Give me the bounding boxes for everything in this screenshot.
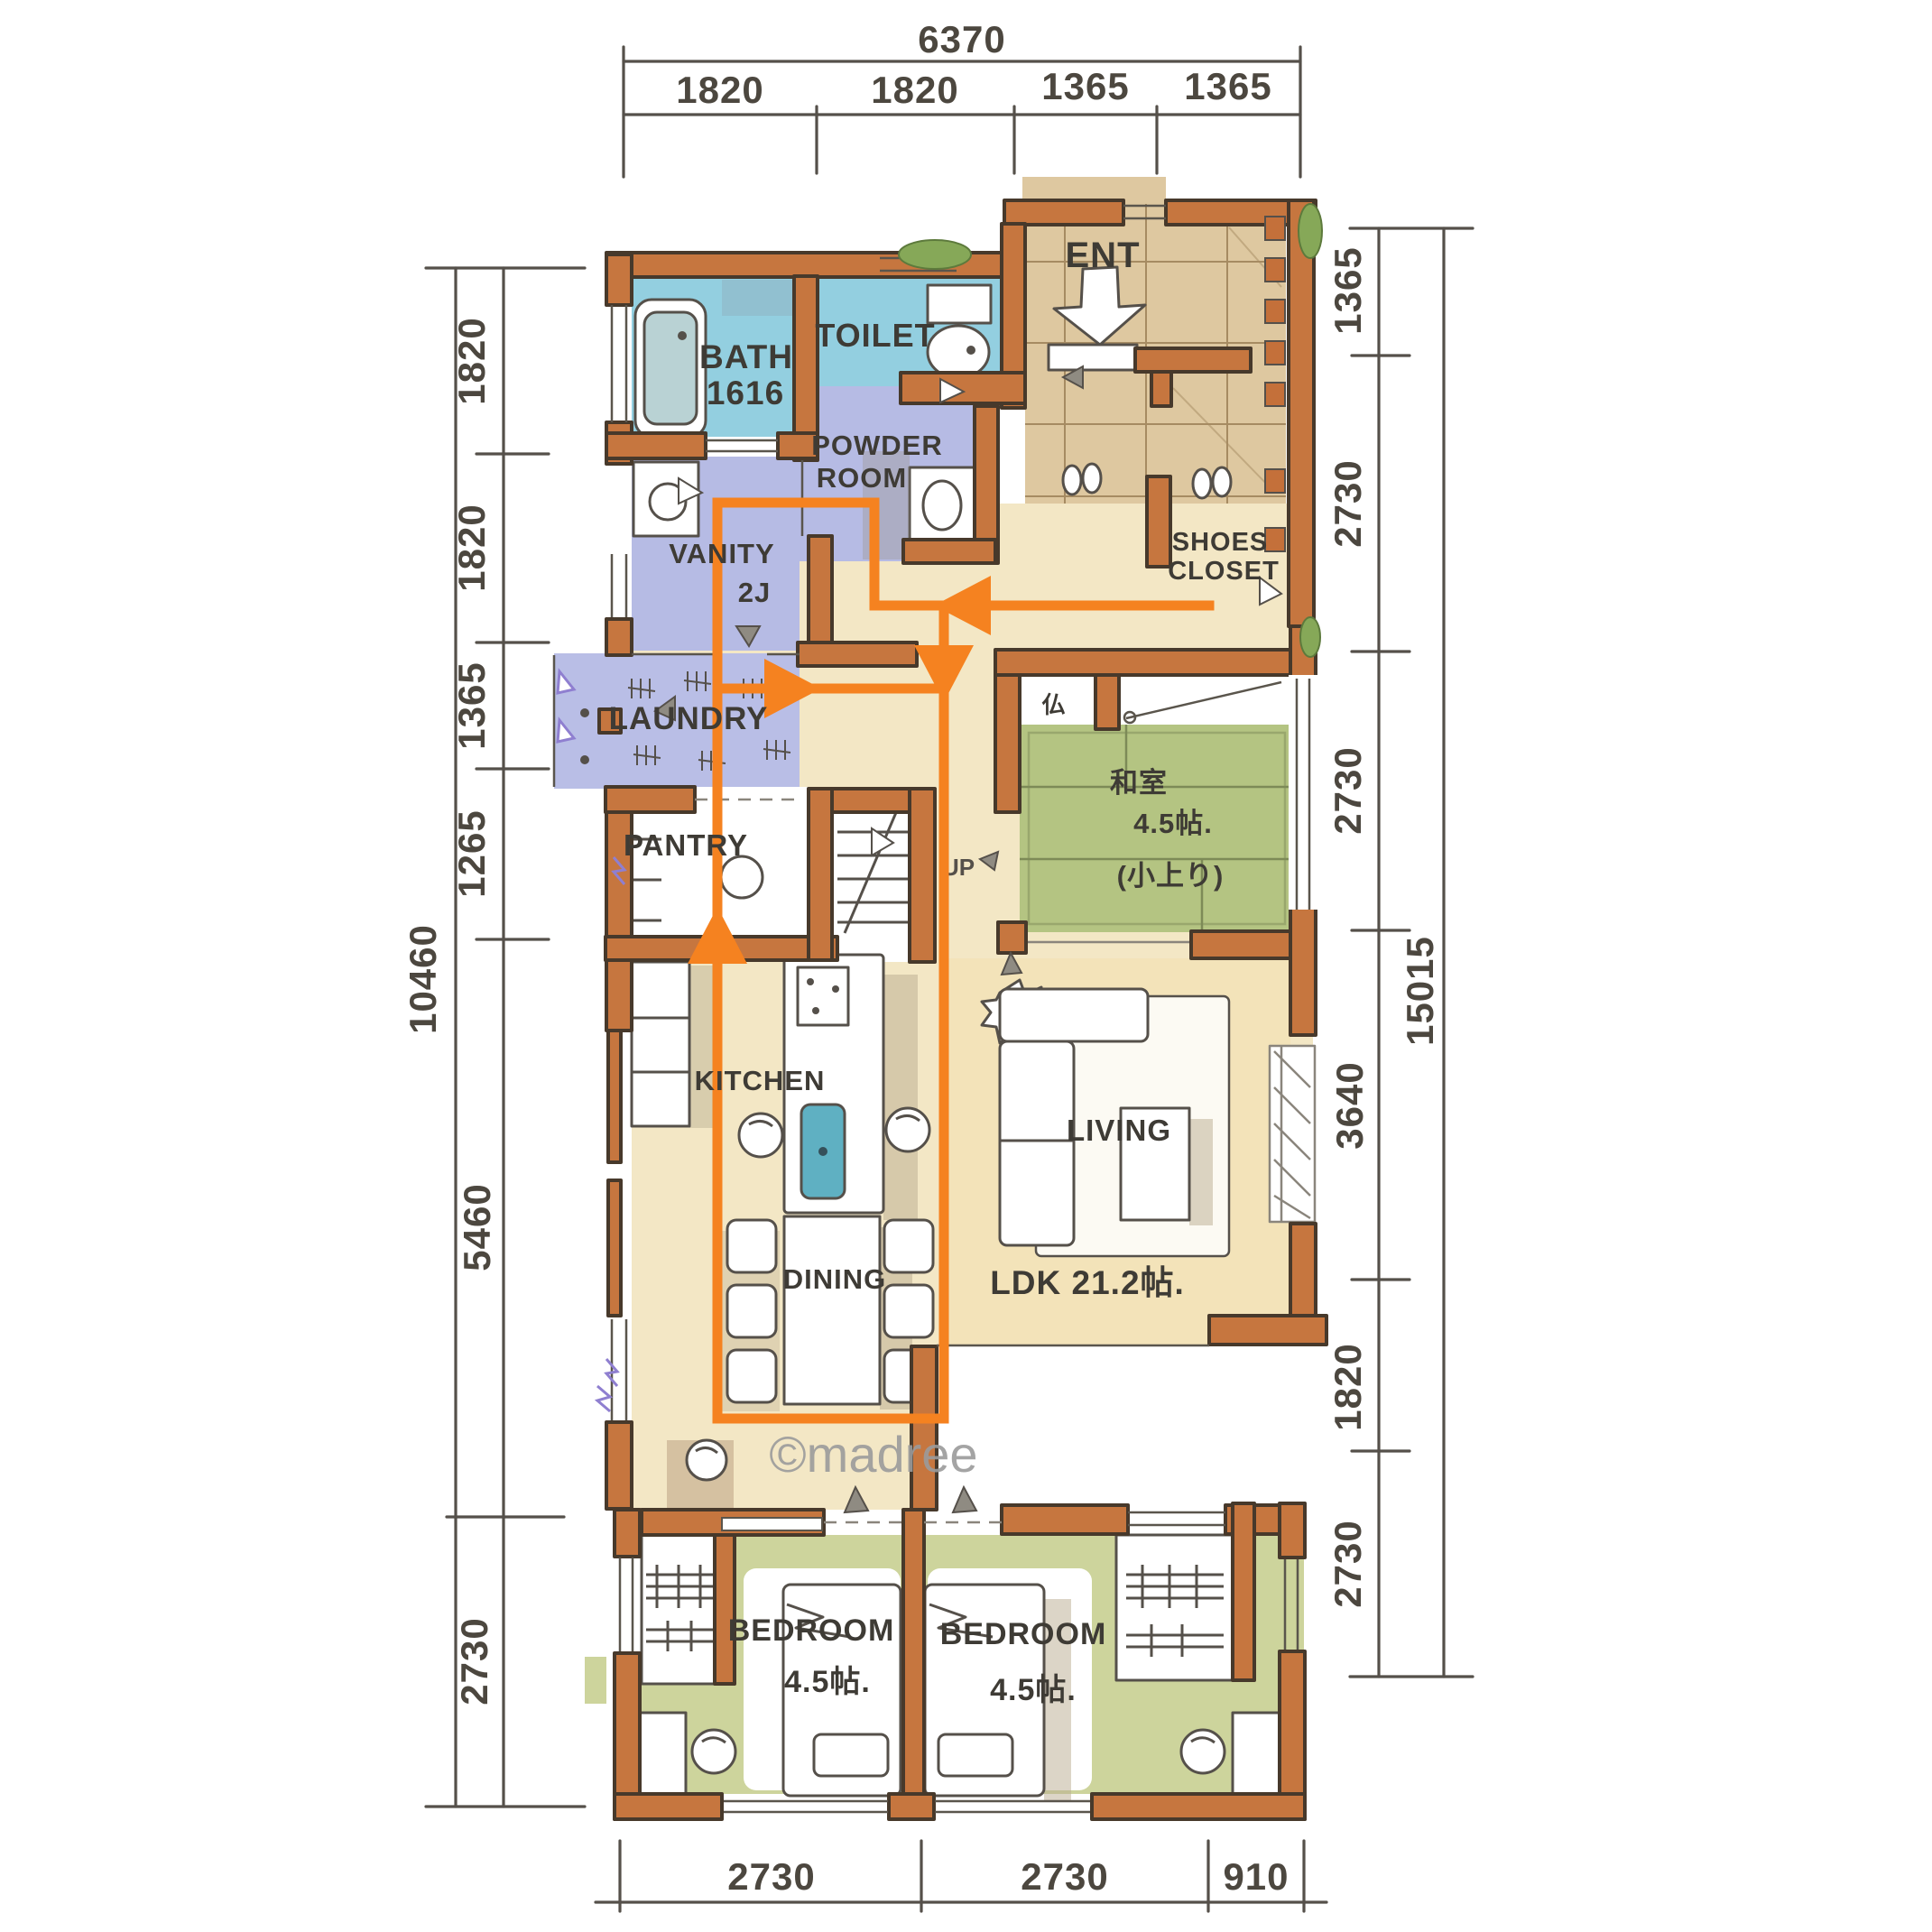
svg-text:BATH: BATH: [699, 338, 793, 375]
svg-text:10460: 10460: [402, 924, 444, 1034]
svg-text:2730: 2730: [453, 1617, 495, 1705]
svg-text:CLOSET: CLOSET: [1168, 557, 1280, 586]
svg-text:2J: 2J: [738, 577, 771, 608]
svg-text:2730: 2730: [1327, 459, 1369, 547]
svg-text:(小上り): (小上り): [1117, 860, 1225, 892]
svg-text:1365: 1365: [1184, 65, 1271, 107]
svg-text:SHOES: SHOES: [1172, 528, 1269, 557]
svg-text:KITCHEN: KITCHEN: [695, 1065, 826, 1096]
svg-text:2730: 2730: [1327, 746, 1369, 834]
svg-text:1820: 1820: [450, 317, 493, 404]
svg-text:6370: 6370: [918, 18, 1005, 60]
svg-text:2730: 2730: [727, 1855, 815, 1898]
svg-text:1616: 1616: [707, 374, 784, 411]
svg-text:3640: 3640: [1328, 1061, 1371, 1149]
svg-text:DINING: DINING: [783, 1263, 887, 1295]
svg-text:1265: 1265: [450, 809, 493, 897]
svg-text:4.5帖.: 4.5帖.: [784, 1665, 871, 1699]
svg-text:910: 910: [1223, 1855, 1289, 1898]
svg-text:15015: 15015: [1399, 936, 1441, 1046]
svg-text:1820: 1820: [871, 69, 958, 111]
svg-text:1820: 1820: [1327, 1343, 1369, 1430]
svg-text:©madree: ©madree: [769, 1426, 977, 1483]
svg-text:和室: 和室: [1110, 767, 1168, 799]
svg-text:1365: 1365: [1327, 246, 1369, 334]
svg-text:LAUNDRY: LAUNDRY: [609, 701, 769, 736]
svg-text:1820: 1820: [450, 504, 493, 591]
svg-text:5460: 5460: [456, 1183, 498, 1271]
svg-text:PANTRY: PANTRY: [624, 828, 748, 862]
svg-text:BEDROOM: BEDROOM: [728, 1613, 895, 1648]
svg-text:TOILET: TOILET: [815, 317, 935, 354]
svg-text:LIVING: LIVING: [1067, 1114, 1171, 1147]
svg-text:1365: 1365: [450, 661, 493, 749]
svg-text:ENT: ENT: [1066, 236, 1141, 275]
svg-text:VANITY: VANITY: [669, 538, 774, 569]
svg-text:仏: 仏: [1041, 691, 1066, 718]
svg-text:1820: 1820: [676, 69, 763, 111]
svg-text:1365: 1365: [1041, 65, 1129, 107]
svg-text:POWDER: POWDER: [811, 430, 943, 461]
svg-text:4.5帖.: 4.5帖.: [990, 1673, 1077, 1707]
svg-text:2730: 2730: [1021, 1855, 1108, 1898]
svg-text:ROOM: ROOM: [817, 462, 907, 494]
svg-text:LDK 21.2帖.: LDK 21.2帖.: [990, 1264, 1185, 1301]
svg-text:2730: 2730: [1327, 1520, 1369, 1607]
svg-text:4.5帖.: 4.5帖.: [1133, 808, 1213, 839]
svg-text:BEDROOM: BEDROOM: [940, 1617, 1107, 1651]
